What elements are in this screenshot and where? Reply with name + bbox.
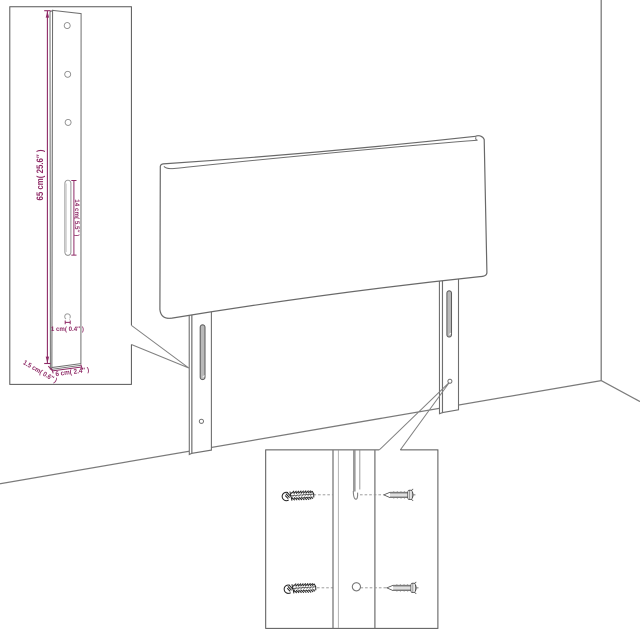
svg-text:65 cm( 25.6″ ): 65 cm( 25.6″ ): [35, 149, 45, 200]
svg-text:1 cm( 0.4″ ): 1 cm( 0.4″ ): [51, 326, 84, 333]
svg-text:14 cm( 5.5″ ): 14 cm( 5.5″ ): [73, 199, 80, 236]
